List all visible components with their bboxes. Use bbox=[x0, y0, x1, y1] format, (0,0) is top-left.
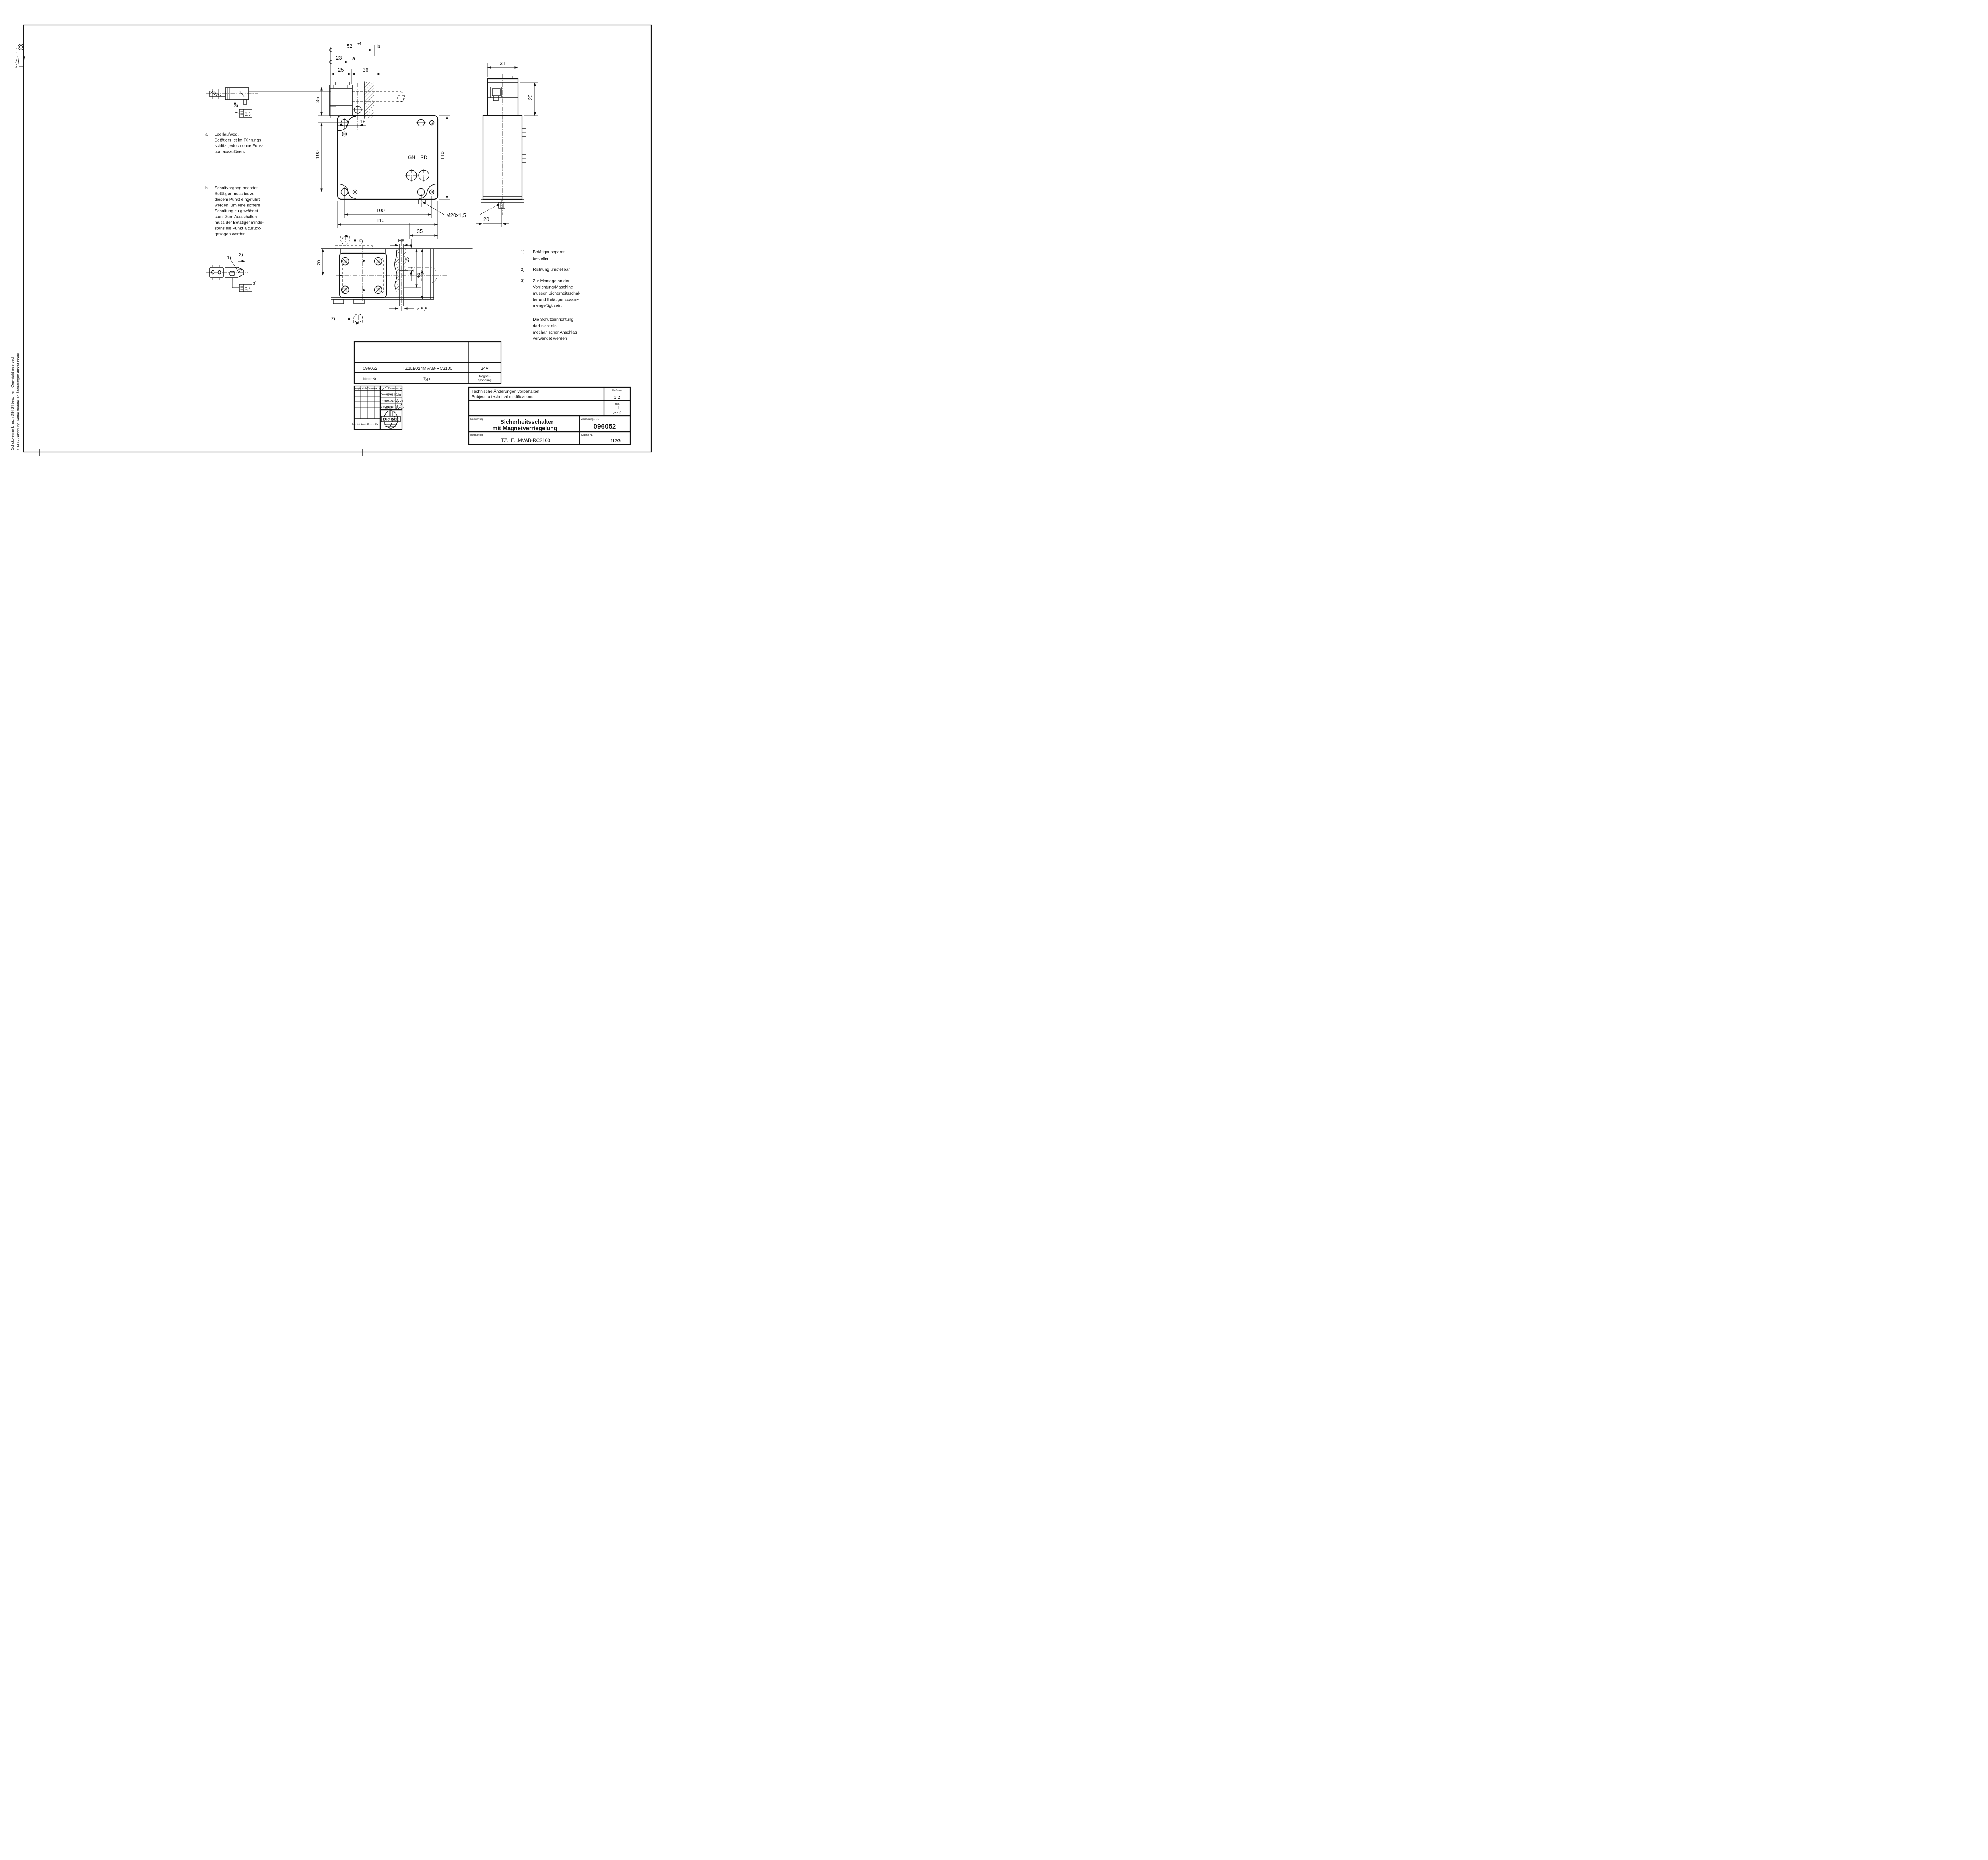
protection-note-line: Die Schutzeinrichtung bbox=[533, 317, 573, 322]
note-3-line: Zur Montage an der bbox=[533, 279, 570, 283]
flag-1: 1) bbox=[227, 256, 231, 260]
tolerance-value-bottom: 0,3 bbox=[245, 287, 250, 291]
voltage-label2: spannung bbox=[478, 378, 491, 382]
rev-header: Name bbox=[373, 387, 381, 390]
sig-row-date: 09.01.06 bbox=[386, 394, 397, 396]
ident-value: 096052 bbox=[363, 366, 378, 371]
ident-label: Ident-Nr. bbox=[363, 377, 377, 381]
tolerance-value-top: 0,3 bbox=[245, 112, 250, 117]
flag-a: a bbox=[352, 55, 355, 61]
dim-37: 37 bbox=[410, 266, 415, 272]
masstab-value: 1:2 bbox=[614, 395, 620, 400]
blatt-value: 1 bbox=[617, 406, 619, 410]
sig-row-name: Lin bbox=[397, 393, 401, 396]
logo-text: EUCHNER bbox=[383, 418, 399, 421]
side-view: 31 20 20 bbox=[476, 60, 538, 227]
dim-m8: M8 bbox=[398, 239, 404, 243]
note-1-label: 1) bbox=[521, 250, 524, 254]
benennung-line1: Sicherheitsschalter bbox=[500, 419, 553, 425]
dim-36-top: 36 bbox=[363, 67, 368, 73]
note3-flag-top: 3) bbox=[234, 103, 238, 108]
note-b-line: diesem Punkt eingeführt bbox=[215, 197, 260, 202]
masstab-label: Maßstab bbox=[612, 389, 622, 392]
tolerance-frame-bottom: 0,3 3) bbox=[232, 278, 256, 292]
blatt-von: von 2 bbox=[613, 411, 621, 415]
sig-row-date: 09.01.05 bbox=[385, 398, 398, 403]
note-1-line: Betätiger separat bbox=[533, 250, 565, 254]
sig-row-date: 09.01.06 bbox=[385, 405, 398, 409]
protection-note-line: mechanischer Anschlag bbox=[533, 330, 577, 335]
note-b-line: Schaltvorgang beendet. bbox=[215, 186, 259, 190]
dim-100: 100 bbox=[376, 208, 385, 213]
dim-m20: M20x1,5 bbox=[446, 212, 466, 218]
note-b-line: stens bis Punkt a zurück- bbox=[215, 226, 262, 231]
note-a-line: Leerlaufweg. bbox=[215, 132, 239, 137]
dim-20-bottom: 20 bbox=[316, 260, 322, 266]
note-2-line: Richtung umstellbar bbox=[533, 267, 570, 272]
ersatz-fuer-label: Ersatz für bbox=[367, 423, 379, 426]
cable-gland-stubs bbox=[522, 128, 526, 188]
dim-25: 25 bbox=[338, 67, 344, 73]
note-a-line: schlitz, jedoch ohne Funk- bbox=[215, 144, 263, 148]
dim-36-vert: 36 bbox=[315, 97, 320, 103]
zeichnung-label: Zeichnungs-Nr. bbox=[581, 418, 599, 421]
note-b-line: Betätiger muss bis zu bbox=[215, 192, 255, 196]
dim-52-tol: +4 bbox=[357, 42, 361, 45]
note3-flag-bottom: 3) bbox=[253, 281, 256, 286]
dim-31: 31 bbox=[500, 60, 505, 66]
note-2-label: 2) bbox=[521, 267, 524, 272]
klasse-value: 112G bbox=[610, 438, 621, 443]
actuator-side-view: 0,3 3) bbox=[206, 88, 331, 117]
page-frame bbox=[9, 25, 651, 456]
note-3-label: 3) bbox=[521, 279, 524, 283]
euchner-logo: EUCHNER bbox=[380, 410, 402, 429]
tech-note-line1: Technische Änderungen vorbehalten bbox=[472, 389, 540, 394]
dim-dia55: ø 5,5 bbox=[417, 306, 428, 312]
note-b-line: muss der Betätiger minde- bbox=[215, 220, 264, 225]
notes-numbered: 1) Betätiger separat bestellen 2) Richtu… bbox=[521, 250, 580, 341]
note-a-label: a bbox=[205, 132, 208, 137]
dim-46: 46 bbox=[415, 273, 421, 278]
note-3-line: müssen Sicherheitsschal- bbox=[533, 291, 580, 296]
indicator-lamps: GN RD bbox=[405, 155, 429, 182]
cad-note-line1: CAD - Zeichnung, keine manuellen Änderun… bbox=[16, 353, 20, 450]
type-value: TZ1LE024MVAB-RC2100 bbox=[402, 366, 452, 371]
note-b-line: gezogen werden. bbox=[215, 232, 247, 237]
blatt-label: Blatt bbox=[614, 403, 619, 405]
voltage-value: 24V bbox=[481, 366, 489, 371]
bottom-view: 2) 2) M8 15 37 46 20 ø 5,5 bbox=[316, 234, 472, 325]
klasse-label: Klasse-Nr. bbox=[581, 434, 593, 436]
note-b-label: b bbox=[205, 186, 208, 190]
protection-note-line: verwendet werden bbox=[533, 336, 567, 341]
units-note: Maße in mm bbox=[14, 48, 18, 68]
front-view: 52 +4 b 23 a 25 36 bbox=[315, 42, 500, 239]
dim-110-vert: 110 bbox=[439, 151, 445, 160]
zeichnung-value: 096052 bbox=[594, 423, 616, 430]
lamp-label-rd: RD bbox=[420, 155, 427, 160]
dim-35: 35 bbox=[417, 228, 423, 234]
voltage-label: Magnet- bbox=[479, 374, 491, 378]
note-a-line: tion auszulösen. bbox=[215, 149, 245, 154]
ersetzt-durch-label: Ersetzt durch bbox=[352, 423, 367, 426]
sig-header: Datum bbox=[388, 387, 396, 390]
dim-52: 52 bbox=[347, 43, 352, 49]
protection-note-line: darf nicht als bbox=[533, 324, 557, 328]
note-a-line: Betätiger ist im Führungs- bbox=[215, 138, 263, 143]
benennung-line2: mit Magnetverriegelung bbox=[492, 425, 557, 432]
flag-b: b bbox=[377, 43, 380, 49]
drawing-sheet: CAD - Zeichnung, keine manuellen Änderun… bbox=[0, 0, 658, 465]
mounting-screws-front bbox=[340, 118, 434, 197]
dim-18: 18 bbox=[360, 118, 365, 124]
note-3-line: ter und Betätiger zusam- bbox=[533, 297, 579, 302]
bracket-screw bbox=[353, 105, 363, 115]
cad-note-line2: Schutzvermerk nach DIN 34 beachten. Copy… bbox=[10, 356, 14, 450]
flag-2-actuator: 2) bbox=[239, 252, 243, 257]
actuator-top-view: 1) 2) 0,3 3) bbox=[206, 252, 256, 292]
note-1-line: bestellen bbox=[533, 256, 549, 261]
bemerkung-value: TZ.LE...MVAB-RC2100 bbox=[501, 438, 550, 443]
title-block: 096052 TZ1LE024MVAB-RC2100 24V Ident-Nr.… bbox=[352, 342, 630, 444]
note-b-line: werden, um eine sichere bbox=[214, 203, 260, 208]
lamp-label-gn: GN bbox=[408, 155, 415, 160]
dim-110: 110 bbox=[377, 217, 385, 223]
dim-100-vert: 100 bbox=[315, 150, 320, 159]
sig-header: Name bbox=[395, 387, 402, 390]
notes-ab: a Leerlaufweg. Betätiger ist im Führungs… bbox=[205, 132, 264, 237]
flag-2-bottom: 2) bbox=[331, 316, 335, 321]
bemerkung-label: Bemerkung bbox=[470, 434, 484, 436]
note-b-line: sten. Zum Ausschalten bbox=[215, 215, 257, 219]
dim-23: 23 bbox=[336, 55, 342, 61]
flag-2-top: 2) bbox=[359, 239, 363, 244]
dim-20-side: 20 bbox=[483, 216, 489, 222]
tech-note-line2: Subject to technical modifications bbox=[472, 394, 533, 399]
benennung-label: Benennung bbox=[470, 418, 484, 421]
note-3-line: Vorrichtung/Maschine bbox=[533, 285, 573, 290]
note-b-line: Schaltung zu gewährlei- bbox=[215, 209, 260, 213]
dim-20-vert: 20 bbox=[527, 95, 533, 100]
dim-15: 15 bbox=[404, 257, 410, 262]
note-3-line: mengefügt sein. bbox=[533, 303, 563, 308]
type-label: Type bbox=[423, 377, 431, 381]
